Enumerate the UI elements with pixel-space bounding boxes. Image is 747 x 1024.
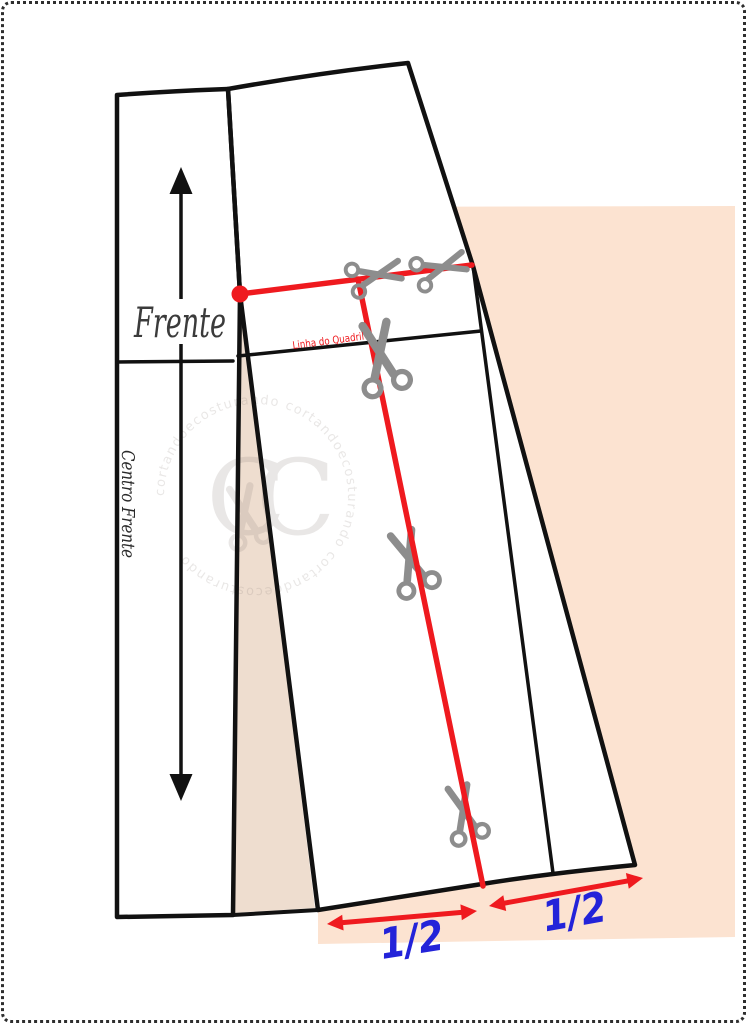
pattern-sheet: cortandoecosturando cortandoecosturando … — [0, 0, 747, 1024]
pivot-point-dot — [232, 286, 249, 303]
center-front-label: Centro Frente — [117, 450, 137, 558]
hem-half-label-left: 1/2 — [376, 910, 447, 968]
hip-line-center-panel — [117, 361, 233, 362]
front-label: Frente — [133, 298, 226, 347]
skirt-pattern-diagram: cortandoecosturando cortandoecosturando … — [0, 0, 747, 1024]
